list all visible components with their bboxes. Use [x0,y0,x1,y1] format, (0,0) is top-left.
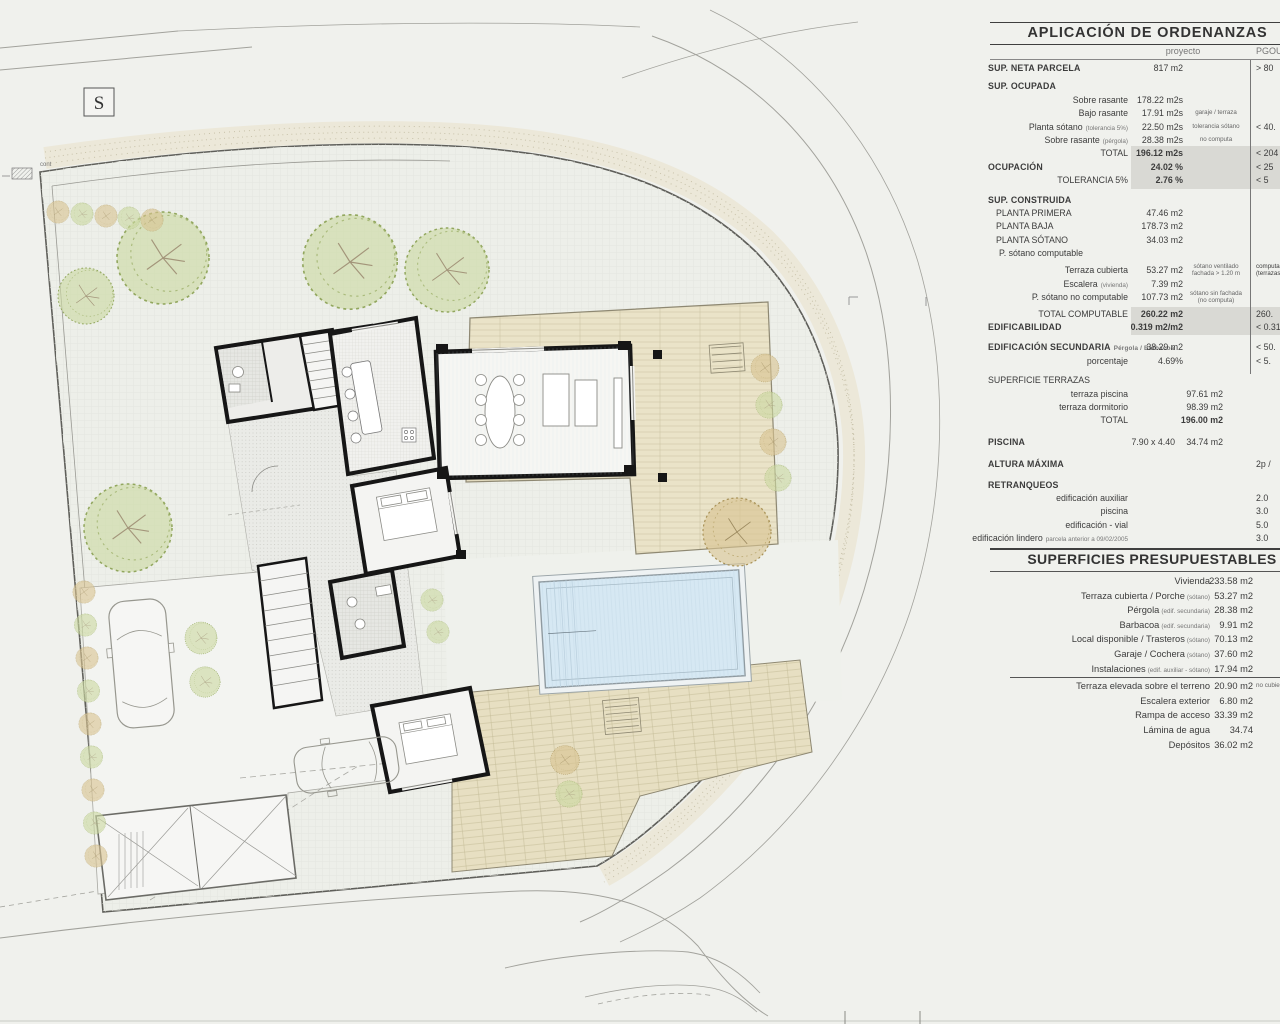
row-label: PLANTA BAJA [996,220,1054,233]
presupuestables-title: SUPERFICIES PRESUPUESTABLES - TOTAL [1015,551,1280,567]
ordenanzas-row: edificación auxiliar2.0 [985,492,1280,505]
presupuestables-row: Pérgola(edif. secundaria)28.38 m2 [985,603,1280,618]
ordenanzas-row: ALTURA MÁXIMA2p / [985,458,1280,471]
contour-label: cont [40,162,52,168]
row-value: 47.46 m2 [1111,207,1183,220]
row-pgou: 260. [1256,308,1273,321]
row-label-text: Instalaciones [1091,664,1145,674]
row-pgou: < 50. [1256,341,1276,354]
row-value: 233.58 m2 [1183,574,1253,589]
row-note: sótano ventilado fachada > 1.20 m [1183,264,1249,277]
row-value: 34.74 [1183,723,1253,738]
row-value: 53.27 m2 [1183,589,1253,604]
presupuestables-row: Barbacoa(edif. secundaria)9.91 m2 [985,618,1280,633]
dining-table [485,376,515,448]
row-label-text: Planta sótano [1029,122,1083,132]
ordenanzas-row: edificación - vial5.0 [985,519,1280,532]
row-label-text: RETRANQUEOS [988,480,1059,490]
ordenanzas-row: RETRANQUEOS [985,479,1280,492]
ordenanzas-row: Bajo rasante17.91 m2sgaraje / terraza [985,107,1280,120]
ordenanzas-row: PLANTA BAJA178.73 m2 [985,220,1280,233]
row-label-text: EDIFICACIÓN SECUNDARIA [988,342,1111,352]
row-value: 53.27 m2 [1111,264,1183,277]
row-value: 0.319 m2/m2 [1111,321,1183,334]
column-divider [1250,60,1251,374]
ordenanzas-row: terraza dormitorio98.39 m2 [985,401,1280,414]
row-label-text: SUP. NETA PARCELA [988,63,1081,73]
row-value: 17.94 m2 [1183,662,1253,677]
row-note: no cubierta [1256,679,1280,694]
row-label: SUP. CONSTRUIDA [988,194,1072,207]
ordenanzas-row: SUP. OCUPADA [985,80,1280,93]
presupuestables-row: Escalera exterior6.80 m2 [985,694,1280,709]
row-label-text: Barbacoa [1120,620,1160,630]
ordenanzas-row: P. sótano no computable107.73 m2sótano s… [985,291,1280,304]
row-value: 97.61 m2 [1155,388,1223,401]
row-label: SUP. OCUPADA [988,80,1056,93]
row-label: edificación - vial [1065,519,1128,532]
row-label: PLANTA SÓTANO [996,234,1068,247]
row-value: 34.74 m2 [1155,436,1223,449]
row-label: piscina [1101,505,1128,518]
ordenanzas-row: TOTAL196.00 m2 [985,414,1280,427]
row-value: 9.91 m2 [1183,618,1253,633]
presupuestables-row: Local disponible / Trasteros(sótano)70.1… [985,632,1280,647]
ordenanzas-row: PLANTA PRIMERA47.46 m2 [985,207,1280,220]
ordenanzas-row: EDIFICABILIDAD0.319 m2/m2< 0.319 [985,321,1280,334]
row-value: 817 m2 [1111,62,1183,75]
ordenanzas-row: EDIFICACIÓN SECUNDARIAPérgola / Barbacoa… [985,341,1280,354]
row-note: sótano sin fachada (no computa) [1183,291,1249,304]
column-header-proyecto: proyecto [1135,46,1231,56]
rule-top [990,22,1280,23]
presupuestables-row: Instalaciones(edif. auxiliar - sótano)17… [985,662,1280,677]
row-value: 17.91 m2s [1111,107,1183,120]
pool [533,564,752,695]
presupuestables-row: Garaje / Cochera(sótano)37.60 m2 [985,647,1280,662]
row-value: 33.39 m2 [1183,708,1253,723]
ordenanzas-row: SUP. CONSTRUIDA [985,194,1280,207]
bed-2 [399,714,458,764]
row-label-text: Local disponible / Trasteros [1072,634,1185,644]
row-label-text: TOTAL [1100,415,1128,425]
row-value: 98.39 m2 [1155,401,1223,414]
row-label-text: PLANTA PRIMERA [996,208,1072,218]
row-label-text: Pérgola [1127,605,1159,615]
row-value: 70.13 m2 [1183,632,1253,647]
row-label: SUP. NETA PARCELA [988,62,1081,75]
presupuestables-row: Terraza cubierta / Porche(sótano)53.27 m… [985,589,1280,604]
ordenanzas-row: P. sótano computable [985,247,1280,260]
ordenanzas-rows: SUP. NETA PARCELA817 m2> 80SUP. OCUPADAS… [985,62,1280,546]
row-value: 38.29 m2 [1111,341,1183,354]
row-value: 20.90 m2 [1183,679,1253,694]
row-label-text: PISCINA [988,437,1025,447]
row-value: 24.02 % [1111,161,1183,174]
row-label: edificación auxiliar [1056,492,1128,505]
row-pgou: < 204 [1256,147,1278,160]
ordenanzas-row: piscina3.0 [985,505,1280,518]
panel-title: APLICACIÓN DE ORDENANZAS [1015,25,1280,41]
row-label-text: edificación auxiliar [1056,493,1128,503]
ordenanzas-row: Planta sótano(tolerancia 5%)22.50 m2stol… [985,121,1280,134]
row-label-text: Terraza cubierta / Porche [1081,591,1185,601]
ordenanzas-row: Sobre rasante(pérgola)28.38 m2sno comput… [985,134,1280,147]
ordenanzas-row: Terraza cubierta53.27 m2sótano ventilado… [985,264,1280,277]
row-value: 196.00 m2 [1155,414,1223,427]
row-value: 178.73 m2 [1111,220,1183,233]
row-pgou: < 5. [1256,355,1271,368]
row-pgou: < 0.319 [1256,321,1280,334]
bathroom-1 [330,570,404,658]
row-label: PISCINA [988,436,1025,449]
row-note: garaje / terraza [1183,107,1249,120]
ordenanzas-row: OCUPACIÓN24.02 %< 25 [985,161,1280,174]
row-value: 22.50 m2s [1111,121,1183,134]
row-label-text: Sobre rasante [1045,135,1100,145]
row-value: 196.12 m2s [1111,147,1183,160]
row-label: SUPERFICIE TERRAZAS [988,374,1090,387]
row-value: 28.38 m2s [1111,134,1183,147]
row-label-text: SUP. OCUPADA [988,81,1056,91]
row-value: 6.80 m2 [1183,694,1253,709]
row-label-text: PLANTA BAJA [996,221,1054,231]
row-pgou: 3.0 [1256,532,1268,545]
ordenanzas-panel: APLICACIÓN DE ORDENANZAS proyecto PGOU S… [985,0,1280,1024]
row-label-text: edificación lindero [972,533,1042,543]
row-label-text: Escalera [1063,279,1097,289]
row-pgou: < 25 [1256,161,1273,174]
row-label-text: P. sótano computable [999,248,1083,258]
row-label: TOTAL [1100,414,1128,427]
rule-under-title2 [990,571,1280,572]
row-label: RETRANQUEOS [988,479,1059,492]
ordenanzas-row: TOTAL196.12 m2s< 204 [985,147,1280,160]
row-pgou: 5.0 [1256,519,1268,532]
row-value: 4.69% [1111,355,1183,368]
row-pgou: > 80 [1256,62,1273,75]
row-label: terraza dormitorio [1059,401,1128,414]
ordenanzas-row: PLANTA SÓTANO34.03 m2 [985,234,1280,247]
row-note: no computa [1183,134,1249,147]
presupuestables-rows: Vivienda233.58 m2Terraza cubierta / Porc… [985,574,1280,752]
row-pgou: < 40. [1256,121,1276,134]
bed-1 [376,488,437,541]
row-label: edificación linderoparcela anterior a 09… [972,532,1128,546]
column-header-pgou: PGOU [1256,46,1280,56]
row-label: PLANTA PRIMERA [996,207,1072,220]
row-value: 28.38 m2 [1183,603,1253,618]
row-label-text: SUP. CONSTRUIDA [988,195,1072,205]
ordenanzas-row: SUP. NETA PARCELA817 m2> 80 [985,62,1280,75]
ordenanzas-row: PISCINA7.90 x 4.4034.74 m2 [985,436,1280,449]
row-label-text: PLANTA SÓTANO [996,235,1068,245]
row-sublabel: parcela anterior a 09/02/2005 [1046,536,1128,543]
row-label: OCUPACIÓN [988,161,1043,174]
ordenanzas-row: Sobre rasante178.22 m2s [985,94,1280,107]
row-value: 107.73 m2 [1111,291,1183,304]
north-marker: S [84,88,114,116]
rule-heavy [990,548,1280,550]
row-label: P. sótano computable [999,247,1083,260]
presupuestables-row: Rampa de acceso33.39 m2 [985,708,1280,723]
presupuestables-row: Depósitos36.02 m2 [985,738,1280,753]
row-value: 178.22 m2s [1111,94,1183,107]
row-pgou: 2p / [1256,458,1271,471]
row-value: 34.03 m2 [1111,234,1183,247]
row-pgou: < 5 [1256,174,1268,187]
rule-under-headers [990,59,1280,60]
ordenanzas-row: SUPERFICIE TERRAZAS [985,374,1280,387]
ordenanzas-row: TOLERANCIA 5%2.76 %< 5 [985,174,1280,187]
presupuestables-row: Terraza elevada sobre el terreno20.90 m2… [985,679,1280,694]
ordenanzas-row: terraza piscina97.61 m2 [985,388,1280,401]
ordenanzas-row: edificación linderoparcela anterior a 09… [985,532,1280,545]
row-label: ALTURA MÁXIMA [988,458,1064,471]
row-note: tolerancia sótano [1183,121,1249,134]
row-value: 36.02 m2 [1183,738,1253,753]
row-label-text: OCUPACIÓN [988,162,1043,172]
row-label: EDIFICABILIDAD [988,321,1062,334]
row-pgou: 2.0 [1256,492,1268,505]
row-pgou: computa (terrazas [1256,264,1280,277]
row-label-text: EDIFICABILIDAD [988,322,1062,332]
row-label-text: Garaje / Cochera [1114,649,1185,659]
row-label-text: terraza piscina [1071,389,1128,399]
row-label: terraza piscina [1071,388,1128,401]
row-pgou: 3.0 [1256,505,1268,518]
row-label-text: terraza dormitorio [1059,402,1128,412]
ordenanzas-row: porcentaje4.69%< 5. [985,355,1280,368]
row-value: 2.76 % [1111,174,1183,187]
presupuestables-row: Lámina de agua34.74 [985,723,1280,738]
presupuestables-row: Vivienda233.58 m2 [985,574,1280,589]
row-value: 7.39 m2 [1111,278,1183,291]
row-label-text: piscina [1101,506,1128,516]
row-value: 260.22 m2 [1111,308,1183,321]
north-marker-letter: S [94,93,105,114]
row-label-text: SUPERFICIE TERRAZAS [988,375,1090,385]
ordenanzas-row: TOTAL COMPUTABLE260.22 m2260. [985,308,1280,321]
row-value: 37.60 m2 [1183,647,1253,662]
row-label-text: ALTURA MÁXIMA [988,459,1064,469]
row-label-text: edificación - vial [1065,520,1128,530]
